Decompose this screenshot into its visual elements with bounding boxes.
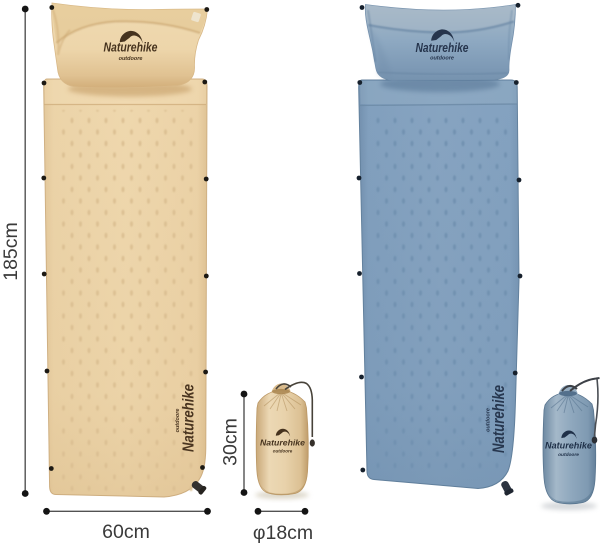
- svg-text:Naturehike: Naturehike: [416, 41, 469, 55]
- svg-text:185cm: 185cm: [0, 222, 22, 281]
- svg-text:φ18cm: φ18cm: [253, 522, 313, 543]
- svg-text:Naturehike: Naturehike: [181, 384, 198, 452]
- svg-text:Naturehike: Naturehike: [104, 41, 158, 55]
- svg-text:Naturehike: Naturehike: [545, 441, 592, 451]
- svg-text:outdoore: outdoore: [486, 408, 492, 432]
- svg-text:30cm: 30cm: [220, 418, 242, 466]
- svg-text:60cm: 60cm: [102, 521, 150, 543]
- svg-text:outdoore: outdoore: [119, 56, 143, 62]
- svg-text:outdoore: outdoore: [273, 449, 293, 454]
- svg-text:outdoore: outdoore: [175, 409, 181, 433]
- svg-text:outdoore: outdoore: [558, 452, 579, 458]
- svg-text:Naturehike: Naturehike: [489, 385, 508, 453]
- svg-text:Naturehike: Naturehike: [260, 438, 305, 448]
- svg-text:outdoore: outdoore: [430, 56, 454, 62]
